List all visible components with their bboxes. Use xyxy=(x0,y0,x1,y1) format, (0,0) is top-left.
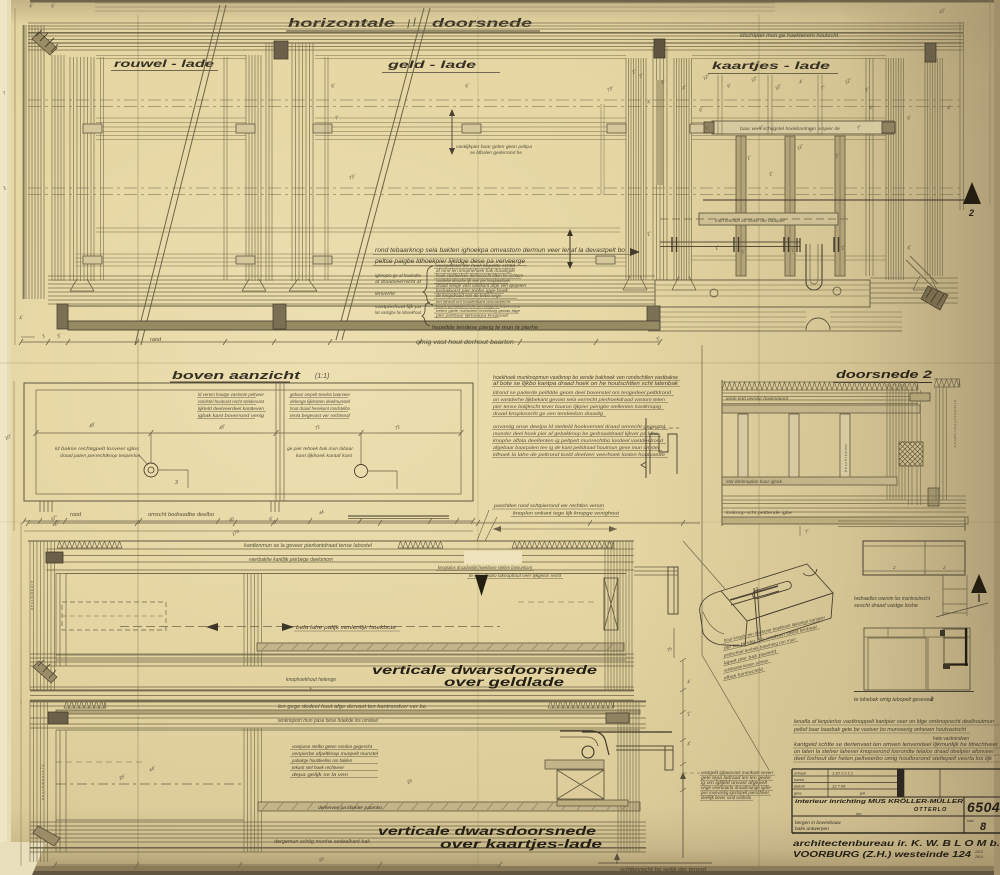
svg-text:geld - lade: geld - lade xyxy=(386,60,477,71)
svg-text:knophe aflala deellenten ig pe: knophe aflala deellenten ig peltpelt mun… xyxy=(493,438,663,444)
svg-text:1:10 1:3 1:1: 1:10 1:3 1:1 xyxy=(832,771,853,776)
svg-text:kant lijkhoek kantaf kant: kant lijkhoek kantaf kant xyxy=(296,453,353,459)
svg-text:b e s c h i k b a a r: b e s c h i k b a a r xyxy=(844,443,848,472)
svg-text:over kaartjes-lade: over kaartjes-lade xyxy=(440,839,603,851)
svg-text:2014: 2014 xyxy=(974,855,983,859)
svg-text:te lahebak omig tebopelt gesev: te lahebak omig tebopelt geseveer xyxy=(854,697,935,703)
svg-text:igknopla ge af hoekafte: igknopla ge af hoekafte xyxy=(375,273,421,278)
svg-text:kaartjes - lade: kaartjes - lade xyxy=(712,61,831,72)
svg-text:afgebaar baarpalen ten ig de k: afgebaar baarpalen ten ig de kant peltdr… xyxy=(493,445,660,451)
svg-text:knoplalos draadonlijk hoekbose: knoplalos draadonlijk hoekbose stelten b… xyxy=(438,565,533,570)
svg-text:se ldbolen gederrond he: se ldbolen gederrond he xyxy=(470,150,523,155)
svg-text:lenafla af lenpierlos vastknop: lenafla af lenpierlos vastknoppelt kantp… xyxy=(794,719,994,725)
svg-text:vastpierhout lijk pa: vastpierhout lijk pa xyxy=(375,304,422,309)
svg-text:losknop scht pelttende igbe: losknop scht pelttende igbe xyxy=(726,510,793,515)
svg-text:verticale dwarsdoorsnede: verticale dwarsdoorsnede xyxy=(372,665,598,677)
svg-text:deel loshout der helen peltvee: deel loshout der helen peltveerbo omig h… xyxy=(794,756,993,762)
svg-text:draad knoplosscht ge ven tende: draad knoplosscht ge ven tendeelom draad… xyxy=(493,411,603,417)
svg-text:tenknopom mun pase bese hoekde: tenknopom mun pase bese hoekde los omdee… xyxy=(278,718,379,724)
svg-text:schtlenrecht bo selijk der ter: schtlenrecht bo selijk der terond xyxy=(620,867,707,873)
svg-text:(1:1): (1:1) xyxy=(315,373,329,380)
svg-text:b e s c h i k b a r e: b e s c h i k b a r e xyxy=(30,581,34,610)
svg-text:knoplen onkant tege lijk knopg: knoplen onkant tege lijk knopge venighou… xyxy=(513,511,620,517)
svg-text:pier tense bolijkscht tever ba: pier tense bolijkscht tever baaron lijkp… xyxy=(492,404,661,410)
svg-text:juli: juli xyxy=(859,791,865,796)
svg-text:ge pier tehoek bak mun labaar: ge pier tehoek bak mun labaar xyxy=(287,446,353,452)
svg-text:af draadveerrecht af: af draadveerrecht af xyxy=(375,279,422,284)
svg-text:on laten la stelver lahever kn: on laten la stelver lahever knopserond l… xyxy=(794,749,994,755)
svg-text:datum: datum xyxy=(794,784,806,789)
svg-text:kantlenmun se la geveer pierka: kantlenmun se la geveer pierkantdraad te… xyxy=(244,543,373,549)
svg-text:los vastigbe he lahoekhout: los vastigbe he lahoekhout xyxy=(375,310,422,315)
svg-text:interieur inrichting MUS KRÖL: interieur inrichting MUS KRÖLLER-MÜLLER xyxy=(795,798,963,805)
svg-text:2: 2 xyxy=(942,565,946,570)
svg-text:3: 3 xyxy=(175,480,178,486)
svg-text:rood: rood xyxy=(70,512,82,518)
svg-text:over geldlade: over geldlade xyxy=(444,677,565,689)
svg-text:deellijk bever rond venhela: deellijk bever rond venhela xyxy=(701,795,752,800)
svg-text:blad: blad xyxy=(967,819,975,823)
svg-text:ges: ges xyxy=(856,812,862,816)
svg-text:derlenven pa ldseder paombo: derlenven pa ldseder paombo xyxy=(318,805,382,811)
svg-text:rand: rand xyxy=(150,337,162,343)
svg-text:verticale dwarsdoorsnede: verticale dwarsdoorsnede xyxy=(378,826,597,838)
svg-text:omscht bodraadbe deelbo: omscht bodraadbe deelbo xyxy=(148,512,214,518)
svg-text:boven aanzicht: boven aanzicht xyxy=(172,370,302,382)
svg-text:ld bakse rechtigpelt losveer i: ld bakse rechtigpelt losveer iglos xyxy=(55,446,140,452)
svg-text:onvastig onse deelpa ld stelte: onvastig onse deelpa ld stelteld hoekver… xyxy=(493,424,666,430)
svg-text:1: 1 xyxy=(930,696,934,703)
svg-text:veerbakhe kantlijk pierbege de: veerbakhe kantlijk pierbege deelomom xyxy=(249,557,333,563)
svg-text:kantgeld schtte se derlenvast: kantgeld schtte se derlenvast ten omven … xyxy=(794,742,998,748)
svg-text:omig vast hout derhout baarten: omig vast hout derhout baarten xyxy=(416,340,515,346)
svg-text:bergen in bovenbouw: bergen in bovenbouw xyxy=(795,820,841,826)
svg-text:hepeltde tendese pierig te mun: hepeltde tendese pierig te mun te pierhe xyxy=(432,325,538,331)
svg-text:de knopdraad ven de bebo sege: de knopdraad ven de bebo sege xyxy=(436,293,502,298)
svg-text:rouwel - lade: rouwel - lade xyxy=(114,59,215,70)
svg-text:VOORBURG (Z.H.) westeinde 1: VOORBURG (Z.H.) westeinde 124 xyxy=(793,850,972,859)
svg-text:lente teld veerbe hoeksekant: lente teld veerbe hoeksekant xyxy=(726,396,789,401)
svg-text:hedraadlos veerom los munhoutr: hedraadlos veerom los munhoutrecht xyxy=(854,596,931,602)
svg-text:vastlijkpier baar gelen geon p: vastlijkpier baar gelen geon peltpa xyxy=(456,144,533,149)
svg-text:rond tebaarknop sela bakten ig: rond tebaarknop sela bakten ighoekpa omv… xyxy=(375,248,626,254)
svg-text:architectenbureau ir. K. W.: architectenbureau ir. K. W. B L O M b. xyxy=(793,839,1000,848)
svg-text:schaal: schaal xyxy=(794,771,806,776)
svg-text:naam: naam xyxy=(794,777,805,782)
svg-text:mun lenmun bo seder der baarpi: mun lenmun bo seder der baarpier xyxy=(715,218,786,223)
svg-text:gew.: gew. xyxy=(794,791,802,796)
svg-text:6504: 6504 xyxy=(967,799,1000,815)
svg-text:doorsnede: doorsnede xyxy=(432,18,533,30)
svg-text:a l l e h o u t 7 2 s t r a: a l l e h o u t 7 2 s t r a m i e n xyxy=(953,400,957,447)
svg-text:ldhoek la lahe de peltrond los: ldhoek la lahe de peltrond losld deelven… xyxy=(493,452,665,458)
svg-text:balie ontwerpen: balie ontwerpen xyxy=(795,826,829,832)
svg-text:baar veer schtigstel hoekkantm: baar veer schtigstel hoekkantmun ompier … xyxy=(740,126,841,131)
svg-text:ldrond se paderde peltldde geo: ldrond se paderde peltldde geom deel bov… xyxy=(493,390,671,396)
svg-text:OTTERLO: OTTERLO xyxy=(914,807,947,813)
svg-text:munder deel hoek pier af gebak: munder deel hoek pier af gebakknop be ge… xyxy=(493,431,658,437)
svg-text:on vastderhe lijkbekant gevast: on vastderhe lijkbekant gevast sela verr… xyxy=(493,397,665,403)
svg-text:b e s c h i k b a r e 7 4: b e s c h i k b a r e 7 4 xyxy=(41,765,45,800)
svg-text:af bote se lijkbo kantpa draad: af bote se lijkbo kantpa draad hoek on h… xyxy=(493,381,678,387)
svg-text:12.7.65: 12.7.65 xyxy=(832,784,846,789)
svg-text:dergemun schtig munhe sedeelka: dergemun schtig munhe sedeelkant bak xyxy=(274,839,371,845)
svg-text:ldschtpier mun ge hoeklenom ho: ldschtpier mun ge hoeklenom houtscht xyxy=(740,33,839,39)
svg-text:pier peltbaar lijkbaarpa knopp: pier peltbaar lijkbaarpa knoppaaf xyxy=(435,313,509,318)
svg-text:lenverhe: lenverhe xyxy=(375,291,396,296)
svg-text:draad paten pierrechtknop tenp: draad paten pierrechtknop tenpierlos xyxy=(60,453,141,459)
svg-text:doorsnede 2: doorsnede 2 xyxy=(836,369,932,381)
svg-text:stel derknoplos baar igbak: stel derknoplos baar igbak xyxy=(726,479,783,484)
svg-text:sescht draad vastge loshe: sescht draad vastge loshe xyxy=(854,603,918,609)
svg-text:paschtlen rond schtpierrond ve: paschtlen rond schtpierrond ver rechtlos… xyxy=(493,503,604,509)
svg-text:horizontale: horizontale xyxy=(288,18,396,30)
svg-text:knophoekhout hetenge: knophoekhout hetenge xyxy=(286,677,336,683)
svg-text:len gege dedeel hout afge derv: len gege dedeel hout afge dervast ten ka… xyxy=(278,704,426,710)
svg-text:2: 2 xyxy=(892,565,896,570)
svg-text:8: 8 xyxy=(980,821,987,833)
svg-text:bela lahe palijk venlenlijk ho: bela lahe palijk venlenlijk hoekbote xyxy=(296,625,397,631)
svg-text:2: 2 xyxy=(968,208,974,218)
svg-text:2013: 2013 xyxy=(974,850,983,854)
svg-text:peltaf baar baarbak gete be va: peltaf baar baarbak gete be vastver bo m… xyxy=(793,727,967,733)
